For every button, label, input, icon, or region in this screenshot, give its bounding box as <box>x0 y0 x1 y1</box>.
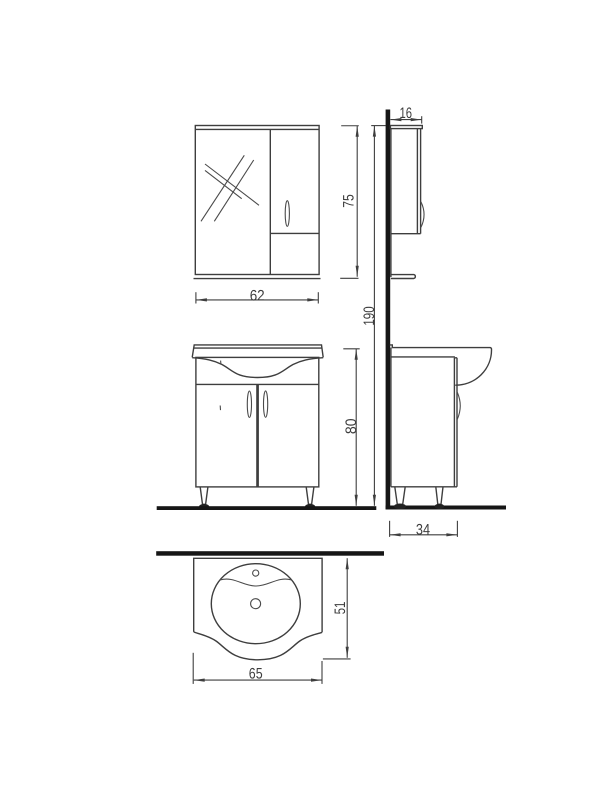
svg-text:75: 75 <box>341 194 358 208</box>
svg-text:16: 16 <box>400 105 413 122</box>
svg-text:190: 190 <box>361 306 378 325</box>
svg-text:65: 65 <box>249 666 263 683</box>
svg-text:80: 80 <box>343 418 360 434</box>
svg-text:34: 34 <box>416 522 430 539</box>
svg-text:62: 62 <box>250 287 265 304</box>
svg-text:51: 51 <box>332 602 349 615</box>
